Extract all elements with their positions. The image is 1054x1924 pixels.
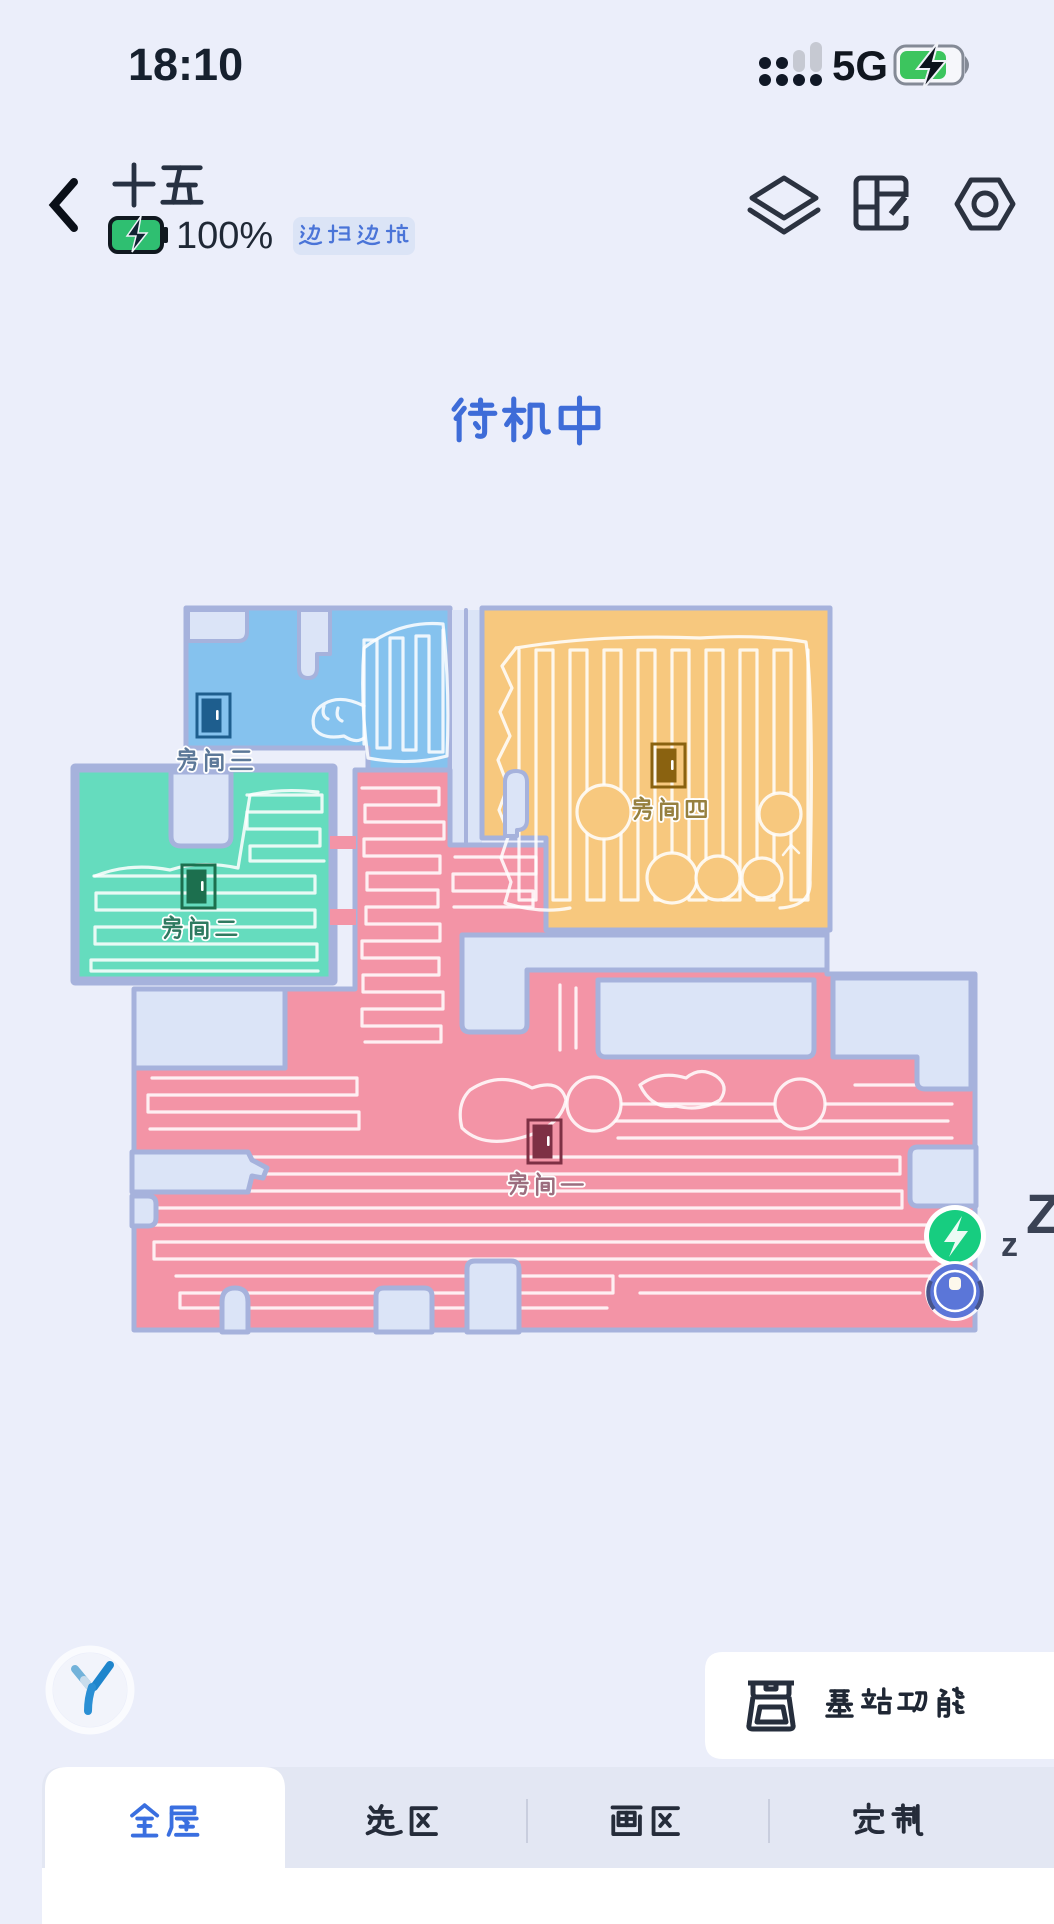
svg-text:Z: Z bbox=[1026, 1182, 1054, 1245]
svg-text:18:10: 18:10 bbox=[128, 39, 243, 90]
svg-text:z: z bbox=[1001, 1226, 1018, 1264]
svg-text:100%: 100% bbox=[176, 215, 273, 257]
svg-text:5G: 5G bbox=[832, 42, 888, 89]
